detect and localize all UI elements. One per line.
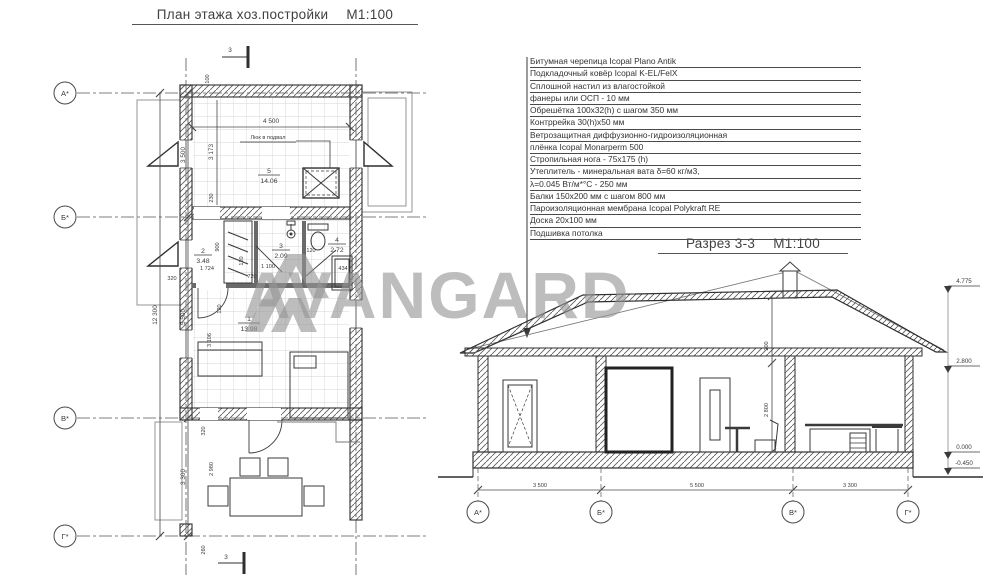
dim-200: 200	[764, 341, 770, 350]
dim-v-g: 3 300	[180, 469, 187, 485]
svg-text:2.09: 2.09	[274, 253, 287, 260]
roof-spec-list: Битумная черепица Icopal Plano Antik Под…	[530, 56, 861, 240]
table-icon	[725, 428, 750, 452]
dim-terrace-off: 320	[201, 426, 207, 435]
plan-title-text: План этажа хоз.постройки	[157, 7, 329, 22]
dim-terrace-height: 2 980	[209, 462, 215, 476]
dim-living-off: 120	[217, 304, 223, 313]
dim-overall: 12 300	[152, 305, 159, 325]
dim-wc-width: 434	[338, 266, 347, 272]
spec-row: Контррейка 30(h)х50 мм	[530, 117, 861, 129]
spec-row: Стропильная нога - 75х175 (h)	[530, 154, 861, 166]
axis-label-g: Г*	[61, 532, 68, 541]
dim-720: 720	[247, 274, 256, 280]
sec-dim-v-g: 3 300	[843, 483, 857, 489]
svg-text:0.000: 0.000	[956, 444, 972, 451]
kitchen-counter-icon	[805, 425, 903, 452]
floor-plan: А* Б* В* Г* 3 3 12 300 3 500 5 500 3 300…	[54, 46, 428, 575]
elev-4775: 4.775	[944, 278, 980, 293]
dim-1100: 1 100	[261, 264, 275, 270]
svg-text:2: 2	[201, 248, 205, 255]
chair-icon	[755, 420, 778, 452]
dim-offset-230: 230	[209, 193, 215, 202]
door-middle	[700, 378, 730, 452]
dim-hall-width: 1 724	[200, 266, 214, 272]
spec-row: Утеплитель - минеральная вата δ=60 кг/м3…	[530, 166, 861, 178]
hatch-note: Люк в подвал	[251, 135, 286, 141]
svg-text:2.72: 2.72	[330, 247, 343, 254]
spec-row: плёнка Icopal Monarperm 500	[530, 142, 861, 154]
plan-title: План этажа хоз.постройкиМ1:100	[132, 7, 418, 25]
room-label-2: 2 3.48	[194, 248, 212, 265]
svg-text:5: 5	[267, 168, 271, 175]
svg-text:2.800: 2.800	[956, 358, 972, 365]
svg-text:3.48: 3.48	[196, 258, 209, 265]
axis-label-b: Б*	[61, 213, 69, 222]
dim-offset-100: 100	[205, 74, 211, 83]
spec-row: Подшивка потолка	[530, 228, 861, 240]
spec-row: фанеры или ОСП - 10 мм	[530, 93, 861, 105]
axis-label-a: А*	[61, 89, 69, 98]
floor-slab	[438, 452, 983, 477]
roof-band	[460, 290, 946, 353]
svg-text:4: 4	[335, 237, 339, 244]
dim-120-b: 120	[306, 248, 315, 254]
spec-row: λ=0.045 Вт/м*°С - 250 мм	[530, 179, 861, 191]
sec-dim-a-b: 3 500	[533, 483, 547, 489]
plan-scale: М1:100	[346, 7, 393, 22]
ceiling-band	[465, 348, 922, 356]
sec-dim-b-v: 5 500	[690, 483, 704, 489]
section-walls	[478, 356, 913, 452]
spec-row: Балки 150х200 мм с шагом 800 мм	[530, 191, 861, 203]
section-inner-dims: 200 2 800	[764, 292, 776, 456]
spec-row: Подкладочный ковёр Icopal K-EL/FelX	[530, 68, 861, 80]
dim-120-a: 120	[239, 256, 245, 265]
sec-axis-b: Б*	[597, 508, 605, 517]
blueprint-canvas: А* Б* В* Г* 3 3 12 300 3 500 5 500 3 300…	[0, 0, 984, 579]
dim-room5-height: 3 173	[208, 144, 215, 160]
elevation-marks: 4.775 2.800 0.000 -0.450	[944, 278, 980, 475]
svg-text:13.98: 13.98	[240, 326, 257, 333]
dim-b-v: 5 500	[180, 309, 187, 325]
spec-row: Обрешётка 100х32(h) с шагом 350 мм	[530, 105, 861, 117]
svg-text:14.06: 14.06	[260, 178, 277, 185]
dim-offset-320: 320	[167, 276, 176, 282]
dim-a-b: 3 500	[180, 147, 187, 163]
plan-axis-circles: А* Б* В* Г*	[54, 82, 76, 547]
spec-row: Ветрозащитная диффузионно-гидроизоляцион…	[530, 130, 861, 142]
section-mark-bottom: 3	[224, 554, 228, 561]
section-mark-top: 3	[228, 47, 232, 54]
dim-living-height: 3 106	[207, 333, 213, 347]
svg-text:4.775: 4.775	[956, 278, 972, 285]
svg-text:-0.450: -0.450	[955, 460, 973, 467]
elev-2800: 2.800	[944, 358, 980, 373]
elev-0000: 0.000	[944, 444, 980, 459]
window-opening	[606, 368, 672, 452]
sec-axis-v: В*	[789, 508, 797, 517]
dim-room5-width: 4 500	[263, 118, 279, 125]
dim-260: 260	[201, 545, 207, 554]
svg-text:3: 3	[279, 243, 283, 250]
dim-hall-height: 900	[215, 242, 221, 251]
spec-row: Сплошной настил из влагостойкой	[530, 81, 861, 93]
spec-row: Доска 20х100 мм	[530, 215, 861, 227]
axis-label-v: В*	[61, 414, 69, 423]
spec-row: Пароизоляционная мембрана Icopal Polykra…	[530, 203, 861, 215]
section-interior	[503, 368, 903, 452]
dining-table-icon	[208, 458, 324, 516]
dim-2800: 2 800	[764, 403, 770, 417]
sec-axis-g: Г*	[904, 508, 911, 517]
sec-axis-a: А*	[474, 508, 482, 517]
spec-row: Битумная черепица Icopal Plano Antik	[530, 56, 861, 68]
svg-text:1: 1	[247, 316, 251, 323]
door-left	[503, 380, 537, 452]
elev-minus-0450: -0.450	[944, 460, 980, 475]
section-bottom-dims: 3 500 5 500 3 300 А* Б* В* Г*	[467, 468, 919, 523]
